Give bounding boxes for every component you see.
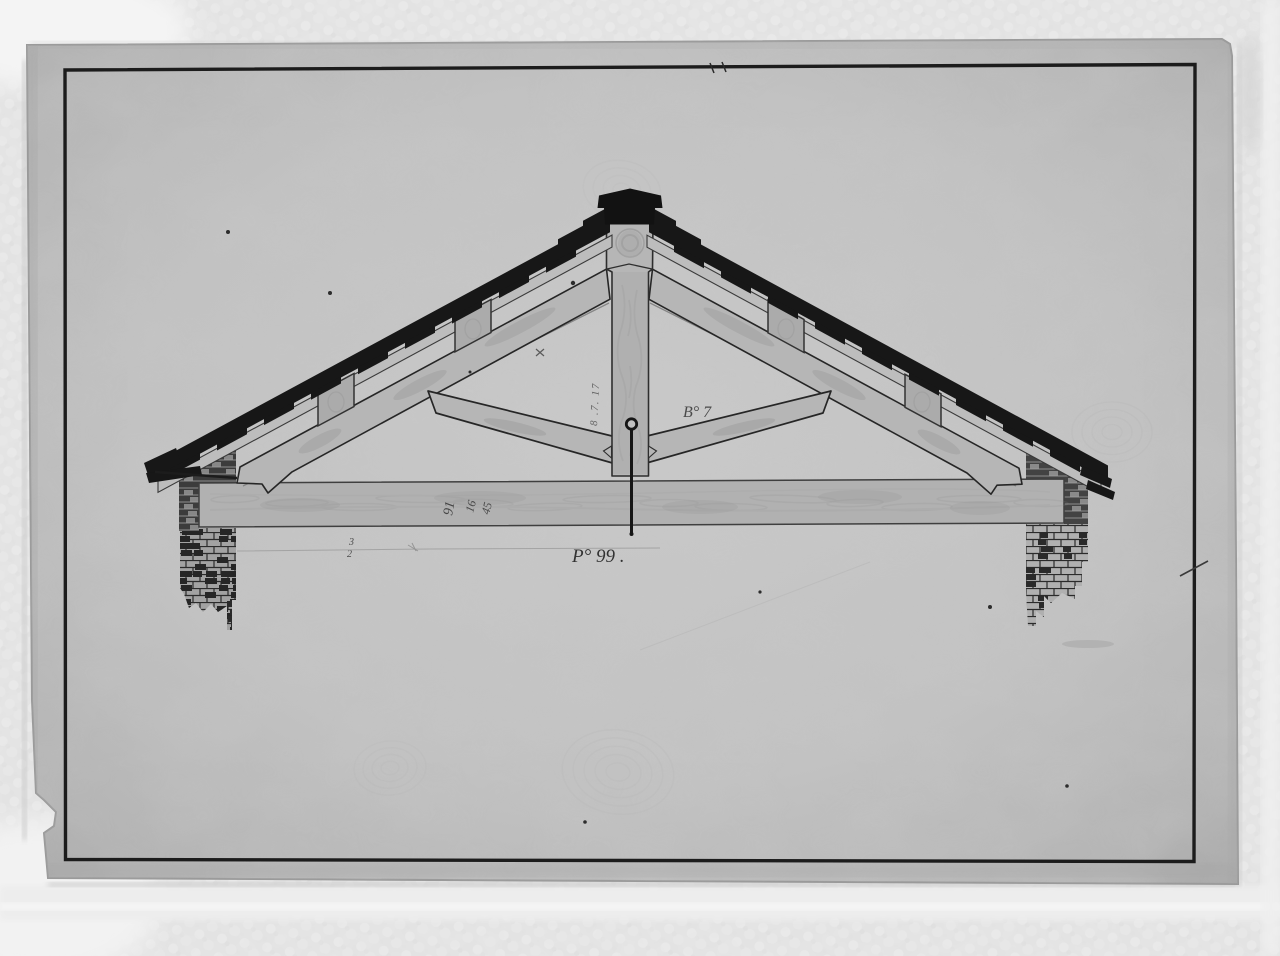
- svg-text:3: 3: [348, 537, 354, 548]
- svg-text:P° 99 .: P° 99 .: [571, 546, 624, 567]
- svg-text:B° 7: B° 7: [683, 404, 712, 421]
- svg-text:91: 91: [441, 500, 458, 516]
- svg-text:2: 2: [347, 549, 352, 560]
- svg-text:8 .7. 17: 8 .7. 17: [589, 382, 602, 426]
